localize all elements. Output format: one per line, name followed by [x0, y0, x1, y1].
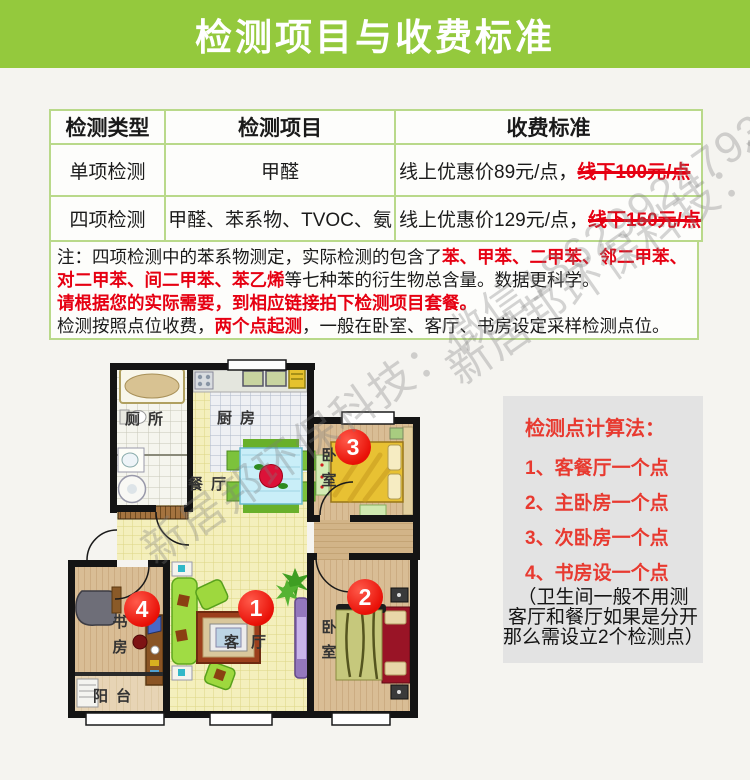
room-label-bathroom: 厕所 — [125, 408, 171, 429]
note-seg-black: 检测按照点位收费， — [57, 316, 215, 336]
tv-cabinet — [295, 598, 308, 678]
price-online: 线上优惠价89元/点， — [399, 162, 577, 183]
floor-plan: 厕所 厨房 餐厅 卧室 客厅 卧室 书房 阳台 1 2 3 4 — [60, 355, 475, 730]
calc-panel-title: 检测点计算法： — [525, 412, 703, 441]
calc-panel: 检测点计算法： 1、客餐厅一个点 2、主卧房一个点 3、次卧房一个点 4、书房设… — [503, 396, 703, 663]
marker-second-bedroom: 3 — [335, 429, 371, 465]
marker-living-room: 1 — [238, 590, 274, 626]
note-seg-black-end: 等七种苯的衍生物总含量。数据更科学。 — [285, 270, 600, 290]
col-header-price: 收费标准 — [395, 110, 702, 144]
calc-item-1: 1、客餐厅一个点 — [525, 454, 703, 489]
price-online: 线上优惠价129元/点， — [399, 210, 588, 231]
calc-footnote-line: （卫生间一般不用测 — [503, 588, 703, 608]
room-label-living: 客厅 — [224, 631, 278, 652]
cell-items: 甲醛、苯系物、TVOC、氨 — [165, 196, 395, 241]
calc-footnote-line: 客厅和餐厅如果是分开 — [503, 608, 703, 628]
room-label-dining: 餐厅 — [188, 473, 234, 494]
table-row-four: 四项检测 甲醛、苯系物、TVOC、氨 线上优惠价129元/点，线下150元/点 — [50, 196, 702, 241]
marker-study: 4 — [124, 591, 160, 627]
kitchen-counter — [193, 369, 307, 392]
note-seg-black: ，一般在卧室、客厅、书房设定采样检测点位。 — [302, 316, 670, 336]
cell-type: 四项检测 — [50, 196, 165, 241]
note-line-3: 检测按照点位收费，两个点起测，一般在卧室、客厅、书房设定采样检测点位。 — [57, 315, 693, 338]
floor-plan-drawing — [60, 355, 475, 730]
note-seg-red-minpoints: 两个点起测 — [215, 316, 303, 336]
calc-footnote-line: 那么需设立2个检测点） — [503, 628, 703, 648]
note-line-1: 注：四项检测中的苯系物测定，实际检测的包含了苯、甲苯、二甲苯、邻二甲苯、对二甲苯… — [57, 246, 693, 292]
bathtub-shape — [120, 369, 184, 403]
marker-master-bedroom: 2 — [347, 579, 383, 615]
price-table: 检测类型 检测项目 收费标准 单项检测 甲醛 线上优惠价89元/点，线下100元… — [49, 109, 703, 242]
col-header-type: 检测类型 — [50, 110, 165, 144]
dining-table — [227, 439, 315, 513]
page-title: 检测项目与收费标准 — [195, 7, 555, 61]
note-line-2: 请根据您的实际需要，到相应链接拍下检测项目套餐。 — [57, 292, 693, 315]
price-offline-struck: 线下100元/点 — [577, 162, 690, 183]
room-label-balcony: 阳台 — [93, 685, 139, 706]
price-offline-struck: 线下150元/点 — [588, 210, 701, 231]
cell-items: 甲醛 — [165, 144, 395, 196]
cell-type: 单项检测 — [50, 144, 165, 196]
table-header-row: 检测类型 检测项目 收费标准 — [50, 110, 702, 144]
calc-footnote: （卫生间一般不用测 客厅和餐厅如果是分开 那么需设立2个检测点） — [503, 588, 703, 648]
cell-price: 线上优惠价89元/点，线下100元/点 — [395, 144, 702, 196]
col-header-items: 检测项目 — [165, 110, 395, 144]
room-label-kitchen: 厨房 — [217, 407, 263, 428]
table-row-single: 单项检测 甲醛 线上优惠价89元/点，线下100元/点 — [50, 144, 702, 196]
cell-price: 线上优惠价129元/点，线下150元/点 — [395, 196, 702, 241]
note-box: 注：四项检测中的苯系物测定，实际检测的包含了苯、甲苯、二甲苯、邻二甲苯、对二甲苯… — [49, 240, 699, 340]
calc-item-2: 2、主卧房一个点 — [525, 489, 703, 524]
note-seg-black: 注：四项检测中的苯系物测定，实际检测的包含了 — [57, 247, 442, 267]
poster: 检测项目与收费标准 检测类型 检测项目 收费标准 单项检测 甲醛 线上优惠价89… — [0, 0, 750, 780]
room-label-bedroom-bottom: 卧室 — [320, 615, 338, 665]
page-title-bar: 检测项目与收费标准 — [0, 0, 750, 68]
calc-item-3: 3、次卧房一个点 — [525, 524, 703, 559]
